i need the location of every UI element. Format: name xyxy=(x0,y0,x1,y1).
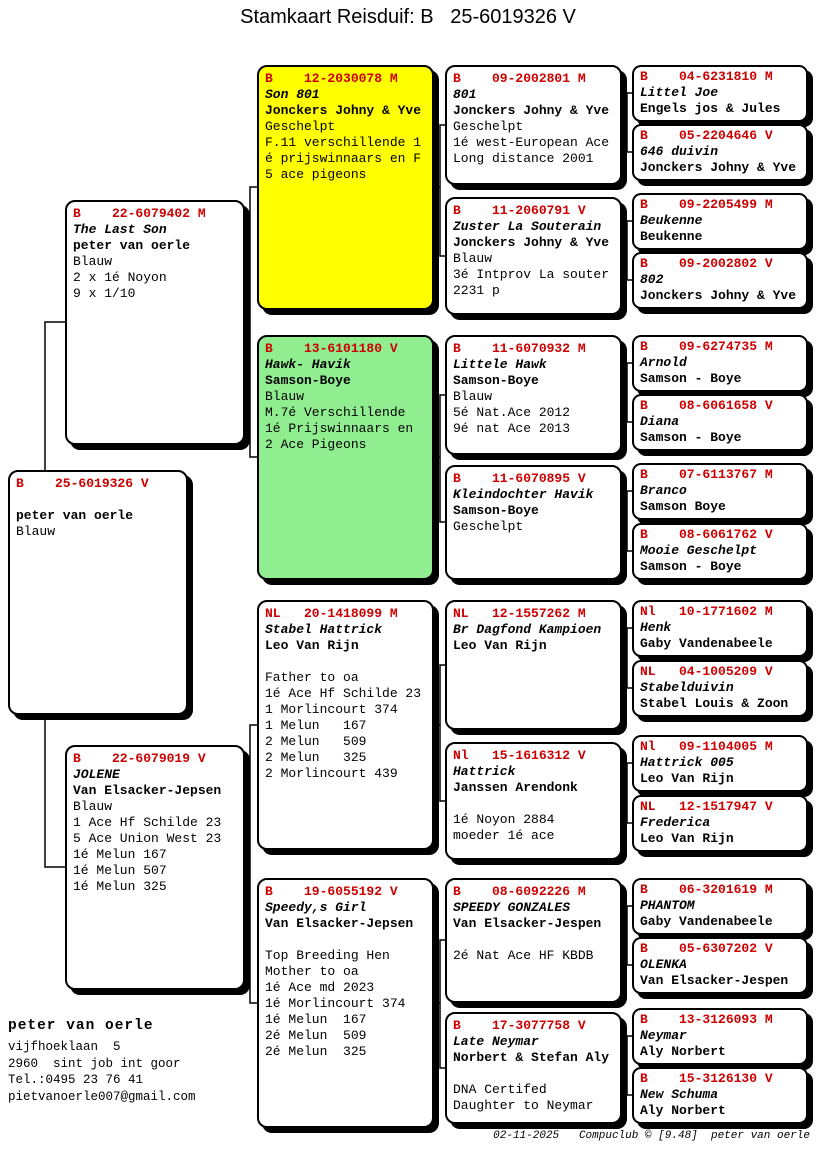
pigeon-name: Mooie Geschelpt xyxy=(640,543,800,559)
pedigree-card-ggp7: B 08-6092226 M SPEEDY GONZALES Van Elsac… xyxy=(445,878,622,1003)
ring-number: B 06-3201619 M xyxy=(640,882,800,898)
pigeon-name: Kleindochter Havik xyxy=(453,487,614,503)
fancier-name: Aly Norbert xyxy=(640,1103,800,1119)
pedigree-card-granddam-paternal: B 13-6101180 V Hawk- Havik Samson-Boye B… xyxy=(257,335,434,580)
fancier-name: Aly Norbert xyxy=(640,1044,800,1060)
pigeon-name: PHANTOM xyxy=(640,898,800,914)
pedigree-card-g10: NL 04-1005209 V Stabelduivin Stabel Loui… xyxy=(632,660,808,717)
ring-number: B 08-6061658 V xyxy=(640,398,800,414)
pedigree-card-g9: Nl 10-1771602 M Henk Gaby Vandenabeele xyxy=(632,600,808,657)
ring-number: Nl 09-1104005 M xyxy=(640,739,800,755)
pedigree-page: Stamkaart Reisduif: B 25-6019326 V B 25-… xyxy=(0,0,816,1172)
pedigree-card-g2: B 05-2204646 V 646 duivin Jonckers Johny… xyxy=(632,124,808,181)
pigeon-name: 802 xyxy=(640,272,800,288)
pigeon-name: Branco xyxy=(640,483,800,499)
pigeon-info: Blauw xyxy=(16,524,180,540)
ring-number: B 09-2002801 M xyxy=(453,71,614,87)
fancier-name: Leo Van Rijn xyxy=(265,638,426,654)
pedigree-card-g4: B 09-2002802 V 802 Jonckers Johny & Yve xyxy=(632,252,808,309)
ring-number: Nl 10-1771602 M xyxy=(640,604,800,620)
ring-number: B 11-6070932 M xyxy=(453,341,614,357)
pedigree-card-g12: NL 12-1517947 V Frederica Leo Van Rijn xyxy=(632,795,808,852)
pigeon-name: Son 801 xyxy=(265,87,426,103)
fancier-name: peter van oerle xyxy=(16,508,180,524)
pigeon-info: Father to oa 1é Ace Hf Schilde 23 1 Morl… xyxy=(265,654,426,782)
ring-number: B 11-6070895 V xyxy=(453,471,614,487)
ring-number: B 09-2205499 M xyxy=(640,197,800,213)
ring-number: B 05-2204646 V xyxy=(640,128,800,144)
pigeon-name: Late Neymar xyxy=(453,1034,614,1050)
fancier-name: Norbert & Stefan Aly xyxy=(453,1050,614,1066)
fancier-name: Samson-Boye xyxy=(453,373,614,389)
pedigree-card-g11: Nl 09-1104005 M Hattrick 005 Leo Van Rij… xyxy=(632,735,808,792)
ring-number: B 25-6019326 V xyxy=(16,476,180,492)
ring-number: B 15-3126130 V xyxy=(640,1071,800,1087)
pigeon-info: Top Breeding Hen Mother to oa 1é Ace md … xyxy=(265,932,426,1060)
ring-number: B 08-6061762 V xyxy=(640,527,800,543)
pigeon-name: Zuster La Souterain xyxy=(453,219,614,235)
pedigree-card-father: B 22-6079402 M The Last Son peter van oe… xyxy=(65,200,245,445)
pigeon-name: 646 duivin xyxy=(640,144,800,160)
fancier-name: Jonckers Johny & Yve xyxy=(640,160,800,176)
pigeon-name: Arnold xyxy=(640,355,800,371)
fancier-name: Gaby Vandenabeele xyxy=(640,636,800,652)
pigeon-name: Speedy,s Girl xyxy=(265,900,426,916)
ring-number: B 22-6079402 M xyxy=(73,206,237,222)
owner-name: peter van oerle xyxy=(8,1018,196,1034)
fancier-name: Samson - Boye xyxy=(640,371,800,387)
print-footer: 02-11-2025 Compuclub © [9.48] peter van … xyxy=(493,1130,810,1142)
pedigree-card-g8: B 08-6061762 V Mooie Geschelpt Samson - … xyxy=(632,523,808,580)
fancier-name: Leo Van Rijn xyxy=(640,831,800,847)
pedigree-card-g16: B 15-3126130 V New Schuma Aly Norbert xyxy=(632,1067,808,1124)
ring-number: B 04-6231810 M xyxy=(640,69,800,85)
pigeon-info: DNA Certifed Daughter to Neymar xyxy=(453,1066,614,1114)
pedigree-card-ggp3: B 11-6070932 M Littele Hawk Samson-Boye … xyxy=(445,335,622,455)
fancier-name: Samson - Boye xyxy=(640,430,800,446)
ring-number: B 22-6079019 V xyxy=(73,751,237,767)
fancier-name: Van Elsacker-Jespen xyxy=(453,916,614,932)
pigeon-name: Br Dagfond Kampioen xyxy=(453,622,614,638)
fancier-name: Leo Van Rijn xyxy=(453,638,614,654)
pigeon-info xyxy=(453,654,614,670)
fancier-name: Van Elsacker-Jespen xyxy=(640,973,800,989)
ring-number: NL 12-1517947 V xyxy=(640,799,800,815)
pigeon-name: Beukenne xyxy=(640,213,800,229)
pedigree-card-ggp5: NL 12-1557262 M Br Dagfond Kampioen Leo … xyxy=(445,600,622,730)
pigeon-name: JOLENE xyxy=(73,767,237,783)
pedigree-card-g5: B 09-6274735 M Arnold Samson - Boye xyxy=(632,335,808,392)
pigeon-name: Frederica xyxy=(640,815,800,831)
pedigree-card-g14: B 05-6307202 V OLENKA Van Elsacker-Jespe… xyxy=(632,937,808,994)
pigeon-info: Blauw 5é Nat.Ace 2012 9é nat Ace 2013 xyxy=(453,389,614,437)
pigeon-name: The Last Son xyxy=(73,222,237,238)
pigeon-info: Geschelpt xyxy=(453,519,614,535)
pigeon-name: Hattrick xyxy=(453,764,614,780)
pedigree-card-granddam-maternal: B 19-6055192 V Speedy,s Girl Van Elsacke… xyxy=(257,878,434,1128)
pigeon-name: New Schuma xyxy=(640,1087,800,1103)
owner-address-lines: vijfhoeklaan 5 2960 sint job int goor Te… xyxy=(8,1039,196,1105)
pedigree-card-mother: B 22-6079019 V JOLENE Van Elsacker-Jepse… xyxy=(65,745,245,990)
fancier-name: Van Elsacker-Jepsen xyxy=(73,783,237,799)
ring-number: Nl 15-1616312 V xyxy=(453,748,614,764)
ring-number: NL 20-1418099 M xyxy=(265,606,426,622)
fancier-name: Jonckers Johny & Yve xyxy=(453,103,614,119)
pedigree-card-ggp4: B 11-6070895 V Kleindochter Havik Samson… xyxy=(445,465,622,580)
pedigree-card-ggp1: B 09-2002801 M 801 Jonckers Johny & Yve … xyxy=(445,65,622,185)
pedigree-card-ggp6: Nl 15-1616312 V Hattrick Janssen Arendon… xyxy=(445,742,622,860)
pigeon-name: 801 xyxy=(453,87,614,103)
ring-number: B 12-2030078 M xyxy=(265,71,426,87)
pigeon-info: Geschelpt F.11 verschillende 1 é prijswi… xyxy=(265,119,426,183)
pigeon-name: Littel Joe xyxy=(640,85,800,101)
pedigree-card-ggp8: B 17-3077758 V Late Neymar Norbert & Ste… xyxy=(445,1012,622,1124)
pigeon-name: Stabel Hattrick xyxy=(265,622,426,638)
pigeon-info: Blauw 3é Intprov La souter 2231 p xyxy=(453,251,614,299)
pigeon-name: Henk xyxy=(640,620,800,636)
pigeon-name: Stabelduivin xyxy=(640,680,800,696)
pigeon-info: Blauw 1 Ace Hf Schilde 23 5 Ace Union We… xyxy=(73,799,237,895)
fancier-name: Samson Boye xyxy=(640,499,800,515)
ring-number: B 07-6113767 M xyxy=(640,467,800,483)
fancier-name: Samson-Boye xyxy=(265,373,426,389)
pedigree-card-grandsire-maternal: NL 20-1418099 M Stabel Hattrick Leo Van … xyxy=(257,600,434,850)
fancier-name: Gaby Vandenabeele xyxy=(640,914,800,930)
pedigree-card-grandsire-paternal: B 12-2030078 M Son 801 Jonckers Johny & … xyxy=(257,65,434,310)
owner-address-block: peter van oerle vijfhoeklaan 5 2960 sint… xyxy=(8,1018,196,1105)
ring-number: NL 04-1005209 V xyxy=(640,664,800,680)
pigeon-name: Neymar xyxy=(640,1028,800,1044)
ring-number: B 13-3126093 M xyxy=(640,1012,800,1028)
fancier-name: Engels jos & Jules xyxy=(640,101,800,117)
fancier-name: peter van oerle xyxy=(73,238,237,254)
fancier-name: Leo Van Rijn xyxy=(640,771,800,787)
fancier-name: Jonckers Johny & Yve xyxy=(640,288,800,304)
ring-number: B 17-3077758 V xyxy=(453,1018,614,1034)
fancier-name: Samson-Boye xyxy=(453,503,614,519)
pedigree-card-g3: B 09-2205499 M Beukenne Beukenne xyxy=(632,193,808,250)
pigeon-info: Blauw 2 x 1é Noyon 9 x 1/10 xyxy=(73,254,237,302)
pedigree-card-g7: B 07-6113767 M Branco Samson Boye xyxy=(632,463,808,520)
pigeon-name: Littele Hawk xyxy=(453,357,614,373)
pigeon-info: Blauw M.7é Verschillende 1é Prijswinnaar… xyxy=(265,389,426,453)
fancier-name: Van Elsacker-Jepsen xyxy=(265,916,426,932)
ring-number: NL 12-1557262 M xyxy=(453,606,614,622)
pedigree-card-subject: B 25-6019326 V peter van oerle Blauw xyxy=(8,470,188,715)
ring-number: B 13-6101180 V xyxy=(265,341,426,357)
pedigree-card-g15: B 13-3126093 M Neymar Aly Norbert xyxy=(632,1008,808,1065)
fancier-name: Samson - Boye xyxy=(640,559,800,575)
pigeon-name: OLENKA xyxy=(640,957,800,973)
pigeon-name: Diana xyxy=(640,414,800,430)
pigeon-name: Hattrick 005 xyxy=(640,755,800,771)
pedigree-card-g13: B 06-3201619 M PHANTOM Gaby Vandenabeele xyxy=(632,878,808,935)
pigeon-info: Geschelpt 1é west-European Ace Long dist… xyxy=(453,119,614,167)
ring-number: B 09-2002802 V xyxy=(640,256,800,272)
ring-number: B 11-2060791 V xyxy=(453,203,614,219)
pedigree-card-g1: B 04-6231810 M Littel Joe Engels jos & J… xyxy=(632,65,808,122)
ring-number: B 19-6055192 V xyxy=(265,884,426,900)
fancier-name: Jonckers Johny & Yve xyxy=(265,103,426,119)
fancier-name: Janssen Arendonk xyxy=(453,780,614,796)
pigeon-name: SPEEDY GONZALES xyxy=(453,900,614,916)
pigeon-name xyxy=(16,492,180,508)
pigeon-info: 2é Nat Ace HF KBDB xyxy=(453,932,614,964)
pedigree-card-g6: B 08-6061658 V Diana Samson - Boye xyxy=(632,394,808,451)
fancier-name: Beukenne xyxy=(640,229,800,245)
fancier-name: Jonckers Johny & Yve xyxy=(453,235,614,251)
ring-number: B 05-6307202 V xyxy=(640,941,800,957)
pigeon-info: 1é Noyon 2884 moeder 1é ace xyxy=(453,796,614,844)
fancier-name: Stabel Louis & Zoon xyxy=(640,696,800,712)
ring-number: B 09-6274735 M xyxy=(640,339,800,355)
ring-number: B 08-6092226 M xyxy=(453,884,614,900)
pigeon-name: Hawk- Havik xyxy=(265,357,426,373)
pedigree-card-ggp2: B 11-2060791 V Zuster La Souterain Jonck… xyxy=(445,197,622,315)
